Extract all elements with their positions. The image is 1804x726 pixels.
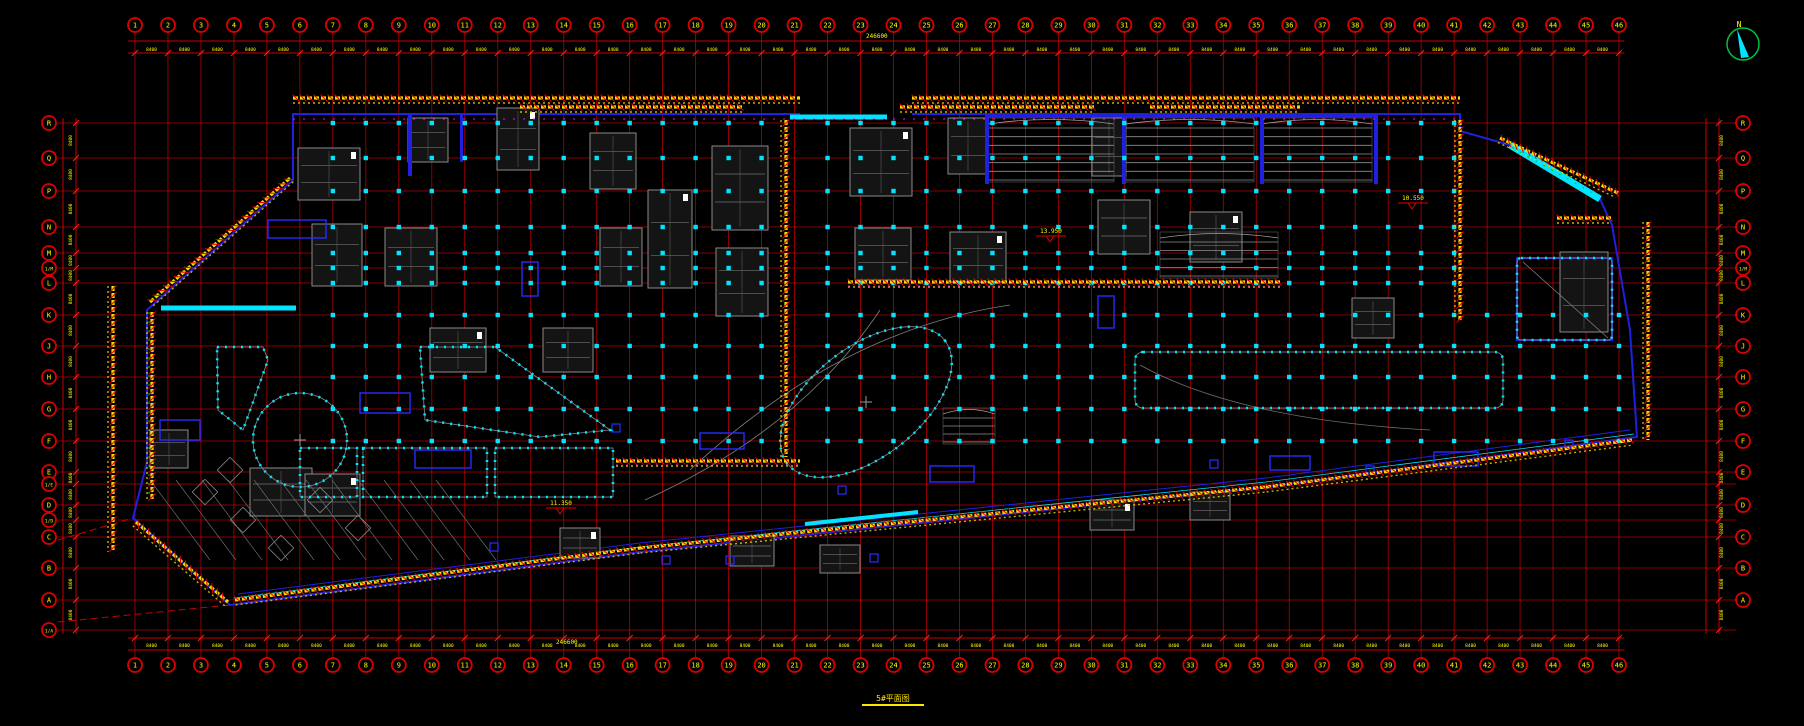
dim-text: 7 <box>331 22 335 30</box>
dim-text: 8400 <box>179 643 190 649</box>
dim-text: 8400 <box>1201 47 1212 53</box>
dim-text: 8400 <box>1201 643 1212 649</box>
dim-text: 8400 <box>1300 47 1311 53</box>
dim-text: J <box>1741 343 1745 351</box>
dim-text: 8400 <box>68 234 74 245</box>
dim-text: 44 <box>1549 22 1557 30</box>
dimension-band-bottom: 8400840084008400840084008400840084008400… <box>128 635 1624 650</box>
dim-text: 22 <box>823 662 831 670</box>
dim-text: 2 <box>166 662 170 670</box>
dim-text: 25 <box>922 22 930 30</box>
dim-text: 8400 <box>1719 419 1725 430</box>
dim-text: 31 <box>1120 22 1128 30</box>
dotted-guides <box>217 258 1612 497</box>
dim-text: 8400 <box>1267 643 1278 649</box>
dim-text: 22 <box>823 22 831 30</box>
dim-text: 8400 <box>68 507 74 518</box>
dim-text: 3 <box>199 662 203 670</box>
dim-text: 8400 <box>1564 643 1575 649</box>
dim-text: 8 <box>364 662 368 670</box>
dim-text: 8400 <box>1719 387 1725 398</box>
dim-text: 1 <box>133 22 137 30</box>
top-total-dimension: 246600 <box>866 34 888 40</box>
dim-text: 8400 <box>146 47 157 53</box>
dim-text: 40 <box>1417 22 1425 30</box>
dim-text: 28 <box>1021 22 1029 30</box>
dim-text: 8400 <box>68 472 74 483</box>
dim-text: 8400 <box>476 47 487 53</box>
dim-text: 8400 <box>68 451 74 462</box>
dim-text: 4 <box>232 22 236 30</box>
dim-text: 32 <box>1153 22 1161 30</box>
dim-text: 8400 <box>245 47 256 53</box>
dim-text: 8400 <box>641 47 652 53</box>
dim-text: 8400 <box>1498 643 1509 649</box>
dim-text: 8400 <box>1036 47 1047 53</box>
dim-text: 1/E <box>45 483 53 489</box>
dim-text: 2 <box>166 22 170 30</box>
dim-text: C <box>1741 534 1745 542</box>
dim-text: 18 <box>691 662 699 670</box>
dim-text: 8400 <box>1719 255 1725 266</box>
compass-icon: N <box>1727 20 1759 60</box>
dim-text: 38 <box>1351 22 1359 30</box>
dim-text: 37 <box>1318 662 1326 670</box>
dim-text: 8400 <box>443 47 454 53</box>
dim-text: 43 <box>1516 662 1524 670</box>
dim-text: 8400 <box>1102 643 1113 649</box>
dim-text: 8400 <box>1719 234 1725 245</box>
dim-text: 8400 <box>68 578 74 589</box>
dim-text: P <box>1741 188 1745 196</box>
dim-text: 8400 <box>1719 472 1725 483</box>
dim-text: N <box>1741 224 1745 232</box>
dim-text: 8400 <box>1432 47 1443 53</box>
dim-text: J <box>47 343 51 351</box>
dim-text: 8400 <box>1719 609 1725 620</box>
dim-text: G <box>47 406 51 414</box>
dim-text: 8400 <box>1719 169 1725 180</box>
dim-text: 19 <box>724 22 732 30</box>
dim-text: 19 <box>724 662 732 670</box>
dim-text: 8400 <box>938 47 949 53</box>
dim-text: 20 <box>757 22 765 30</box>
dim-text: 8400 <box>1531 643 1542 649</box>
dim-text: 41 <box>1450 662 1458 670</box>
dim-text: 29 <box>1054 22 1062 30</box>
dim-text: 8400 <box>410 47 421 53</box>
dim-text: 8400 <box>740 643 751 649</box>
dim-text: 8400 <box>344 643 355 649</box>
dim-text: 8400 <box>1719 547 1725 558</box>
dim-text: 33 <box>1186 22 1194 30</box>
dim-text: 1/D <box>45 519 53 525</box>
dim-text: 8400 <box>68 609 74 620</box>
dim-text: 23 <box>856 662 864 670</box>
dim-text: C <box>47 534 51 542</box>
dim-text: 8400 <box>377 643 388 649</box>
dim-text: 8400 <box>68 255 74 266</box>
dim-text: 8400 <box>1719 203 1725 214</box>
dim-text: 32 <box>1153 662 1161 670</box>
row-bubbles-left: RQPNM1/MLKJHGFE1/ED1/DCBA1/A <box>42 116 56 637</box>
dim-text: 8400 <box>68 293 74 304</box>
dim-text: 8400 <box>1465 47 1476 53</box>
dim-text: L <box>47 280 51 288</box>
dim-text: 8400 <box>1267 47 1278 53</box>
dim-text: 42 <box>1483 662 1491 670</box>
dim-text: 34 <box>1219 662 1227 670</box>
dim-text: M <box>47 250 51 258</box>
dim-text: 8400 <box>1597 643 1608 649</box>
dim-text: 6 <box>298 662 302 670</box>
dim-text: 8400 <box>971 47 982 53</box>
dim-text: 8400 <box>806 47 817 53</box>
dim-text: 24 <box>889 22 897 30</box>
dim-text: 8400 <box>278 47 289 53</box>
dim-text: 1/M <box>1739 267 1747 273</box>
dim-text: 8400 <box>344 47 355 53</box>
dim-text: 13 <box>527 662 535 670</box>
dim-text: 23 <box>856 22 864 30</box>
dim-text: 8400 <box>1234 643 1245 649</box>
dimension-band-left: 8400840084008400840084008400840084008400… <box>63 118 79 634</box>
dim-text: N <box>47 224 51 232</box>
dim-text: 8400 <box>1719 578 1725 589</box>
dim-text: E <box>1741 469 1745 477</box>
dim-text: 3 <box>199 22 203 30</box>
dim-text: 8400 <box>1719 135 1725 146</box>
dim-text: 8400 <box>311 47 322 53</box>
dim-text: 17 <box>658 22 666 30</box>
dim-text: 6 <box>298 22 302 30</box>
dim-text: 8400 <box>1719 489 1725 500</box>
dim-text: 8400 <box>509 47 520 53</box>
floor-plan: 8400840084008400840084008400840084008400… <box>0 0 1804 726</box>
dim-text: 21 <box>790 22 798 30</box>
dim-text: 8400 <box>608 47 619 53</box>
dim-text: 8400 <box>68 135 74 146</box>
dim-text: 8400 <box>68 270 74 281</box>
dim-text: 35 <box>1252 22 1260 30</box>
dim-text: 44 <box>1549 662 1557 670</box>
dim-text: 12 <box>494 662 502 670</box>
dim-text: 31 <box>1120 662 1128 670</box>
dim-text: G <box>1741 406 1745 414</box>
dim-text: 10.550 <box>1402 195 1424 202</box>
dim-text: 17 <box>658 662 666 670</box>
dim-text: 1/M <box>45 267 53 273</box>
dim-text: 40 <box>1417 662 1425 670</box>
plan-title: 5#平面图 <box>862 694 924 706</box>
bottom-total-dimension: 246600 <box>556 640 578 646</box>
dim-text: 5 <box>265 22 269 30</box>
dim-text: 11 <box>461 662 469 670</box>
dimension-band-right: 8400840084008400840084008400840084008400… <box>1706 118 1725 634</box>
dim-text: 8400 <box>905 643 916 649</box>
dim-text: 8400 <box>1036 643 1047 649</box>
dim-text: 8400 <box>68 523 74 534</box>
dim-text: 8400 <box>1003 47 1014 53</box>
dim-text: 8400 <box>1719 451 1725 462</box>
dim-text: 8400 <box>1498 47 1509 53</box>
dim-text: 34 <box>1219 22 1227 30</box>
dim-text: 28 <box>1021 662 1029 670</box>
dim-text: 8400 <box>707 643 718 649</box>
dim-text: 12 <box>494 22 502 30</box>
dim-text: 15 <box>592 662 600 670</box>
dim-text: 8400 <box>509 643 520 649</box>
dim-text: 35 <box>1252 662 1260 670</box>
dim-text: 8400 <box>608 643 619 649</box>
dim-text: 8400 <box>311 643 322 649</box>
dim-text: 30 <box>1087 662 1095 670</box>
dim-text: 20 <box>757 662 765 670</box>
dim-text: 8400 <box>278 643 289 649</box>
dim-text: 45 <box>1582 22 1590 30</box>
dim-text: 39 <box>1384 22 1392 30</box>
dim-text: M <box>1741 250 1745 258</box>
dim-text: 8400 <box>1168 47 1179 53</box>
dim-text: 8400 <box>410 643 421 649</box>
dim-text: B <box>47 565 51 573</box>
dim-text: P <box>47 188 51 196</box>
dim-text: 8400 <box>1719 356 1725 367</box>
dim-text: 8400 <box>1719 293 1725 304</box>
dim-text: 9 <box>397 22 401 30</box>
dim-text: 24 <box>889 662 897 670</box>
dim-text: Q <box>1741 155 1745 163</box>
dim-text: 8400 <box>740 47 751 53</box>
dim-text: 8400 <box>1531 47 1542 53</box>
dim-text: 39 <box>1384 662 1392 670</box>
dim-text: 8400 <box>1399 47 1410 53</box>
dim-text: 8400 <box>68 356 74 367</box>
dim-text: 11 <box>461 22 469 30</box>
dim-text: 16 <box>625 22 633 30</box>
row-bubbles-right: RQPNM1/MLKJHGFEDCBA <box>1736 116 1750 607</box>
construction-lines <box>58 518 230 622</box>
dim-text: D <box>47 502 51 510</box>
dim-text: 8400 <box>971 643 982 649</box>
dim-text: B <box>1741 565 1745 573</box>
dim-text: 8400 <box>68 547 74 558</box>
compass-north-label: N <box>1737 20 1742 29</box>
dim-text: 5 <box>265 662 269 670</box>
dim-text: 8400 <box>1399 643 1410 649</box>
dim-text: 8400 <box>1366 643 1377 649</box>
dim-text: 26 <box>955 22 963 30</box>
dim-text: 16 <box>625 662 633 670</box>
dim-text: H <box>1741 374 1745 382</box>
dim-text: 8400 <box>1135 47 1146 53</box>
dim-text: 8400 <box>1432 643 1443 649</box>
dim-text: 8400 <box>443 643 454 649</box>
column-bubbles-top: 1234567891011121314151617181920212223242… <box>128 18 1626 32</box>
dim-text: 46 <box>1615 22 1623 30</box>
dim-text: 45 <box>1582 662 1590 670</box>
dim-text: 41 <box>1450 22 1458 30</box>
dim-text: 1/A <box>45 629 53 635</box>
dim-text: 8400 <box>806 643 817 649</box>
dim-text: 8400 <box>1465 643 1476 649</box>
dim-text: H <box>47 374 51 382</box>
grid-vertical-lines <box>135 32 1619 658</box>
dim-text: L <box>1741 280 1745 288</box>
dim-text: 8400 <box>1300 643 1311 649</box>
dim-text: Q <box>47 155 51 163</box>
dim-text: 8400 <box>575 47 586 53</box>
dim-text: 8400 <box>1719 270 1725 281</box>
dimension-band-top: 8400840084008400840084008400840084008400… <box>128 41 1624 56</box>
dim-text: 8400 <box>773 47 784 53</box>
dim-text: 8400 <box>68 169 74 180</box>
dim-text: 30 <box>1087 22 1095 30</box>
dim-text: 36 <box>1285 22 1293 30</box>
dim-text: 18 <box>691 22 699 30</box>
dim-text: 13.950 <box>1040 228 1062 235</box>
dim-text: 8400 <box>938 643 949 649</box>
dim-text: 4 <box>232 662 236 670</box>
dim-text: 33 <box>1186 662 1194 670</box>
dim-text: 13 <box>527 22 535 30</box>
dim-text: 8400 <box>1719 507 1725 518</box>
dim-text: F <box>1741 438 1745 446</box>
dim-text: 8400 <box>1333 643 1344 649</box>
dim-text: 14 <box>559 22 567 30</box>
dim-text: 8400 <box>707 47 718 53</box>
dim-text: 8400 <box>1366 47 1377 53</box>
dim-text: F <box>47 438 51 446</box>
dim-text: 43 <box>1516 22 1524 30</box>
dim-text: 8400 <box>68 489 74 500</box>
dim-text: 26 <box>955 662 963 670</box>
dim-text: 8400 <box>1564 47 1575 53</box>
dim-text: 8400 <box>839 47 850 53</box>
dim-text: E <box>47 469 51 477</box>
dim-text: D <box>1741 502 1745 510</box>
cad-viewport: 8400840084008400840084008400840084008400… <box>0 0 1804 726</box>
dim-text: 8400 <box>212 643 223 649</box>
dim-text: 14 <box>559 662 567 670</box>
dim-text: 38 <box>1351 662 1359 670</box>
dim-text: 8400 <box>68 325 74 336</box>
dim-text: 46 <box>1615 662 1623 670</box>
dim-text: 29 <box>1054 662 1062 670</box>
dim-text: 8400 <box>542 47 553 53</box>
dim-text: 7 <box>331 662 335 670</box>
dim-text: 8400 <box>1069 643 1080 649</box>
dim-text: 8400 <box>245 643 256 649</box>
dim-text: 10 <box>428 662 436 670</box>
dim-text: 8400 <box>839 643 850 649</box>
dim-text: 8400 <box>1719 523 1725 534</box>
dim-text: 8400 <box>773 643 784 649</box>
interior-cores <box>150 108 1608 573</box>
dim-text: 10 <box>428 22 436 30</box>
dim-text: 42 <box>1483 22 1491 30</box>
dim-text: 8400 <box>1597 47 1608 53</box>
dim-text: 8400 <box>476 643 487 649</box>
dim-text: 25 <box>922 662 930 670</box>
dim-text: 8400 <box>905 47 916 53</box>
dim-text: 21 <box>790 662 798 670</box>
dim-text: 37 <box>1318 22 1326 30</box>
dim-text: 8400 <box>1168 643 1179 649</box>
dim-text: 8400 <box>1234 47 1245 53</box>
column-bubbles-bottom: 1234567891011121314151617181920212223242… <box>128 658 1626 672</box>
dim-text: 36 <box>1285 662 1293 670</box>
dim-text: 1 <box>133 662 137 670</box>
dim-text: 8400 <box>1069 47 1080 53</box>
dim-text: 8400 <box>377 47 388 53</box>
dim-text: 8400 <box>674 643 685 649</box>
dim-text: 8400 <box>1333 47 1344 53</box>
dim-text: 8400 <box>68 419 74 430</box>
dim-text: 15 <box>592 22 600 30</box>
dim-text: 8 <box>364 22 368 30</box>
dim-text: 8400 <box>68 387 74 398</box>
dim-text: 8400 <box>1102 47 1113 53</box>
dim-text: 8400 <box>542 643 553 649</box>
dim-text: 8400 <box>212 47 223 53</box>
dim-text: 8400 <box>146 643 157 649</box>
dim-text: 8400 <box>1719 325 1725 336</box>
dim-text: 8400 <box>872 643 883 649</box>
dim-text: 9 <box>397 662 401 670</box>
dim-text: 8400 <box>641 643 652 649</box>
dim-text: 27 <box>988 22 996 30</box>
dim-text: 8400 <box>1135 643 1146 649</box>
dim-text: 8400 <box>1003 643 1014 649</box>
dim-text: 8400 <box>674 47 685 53</box>
dim-text: 8400 <box>872 47 883 53</box>
dim-text: 8400 <box>179 47 190 53</box>
dim-text: 8400 <box>68 203 74 214</box>
dim-text: 11.350 <box>550 500 572 507</box>
dim-text: 27 <box>988 662 996 670</box>
